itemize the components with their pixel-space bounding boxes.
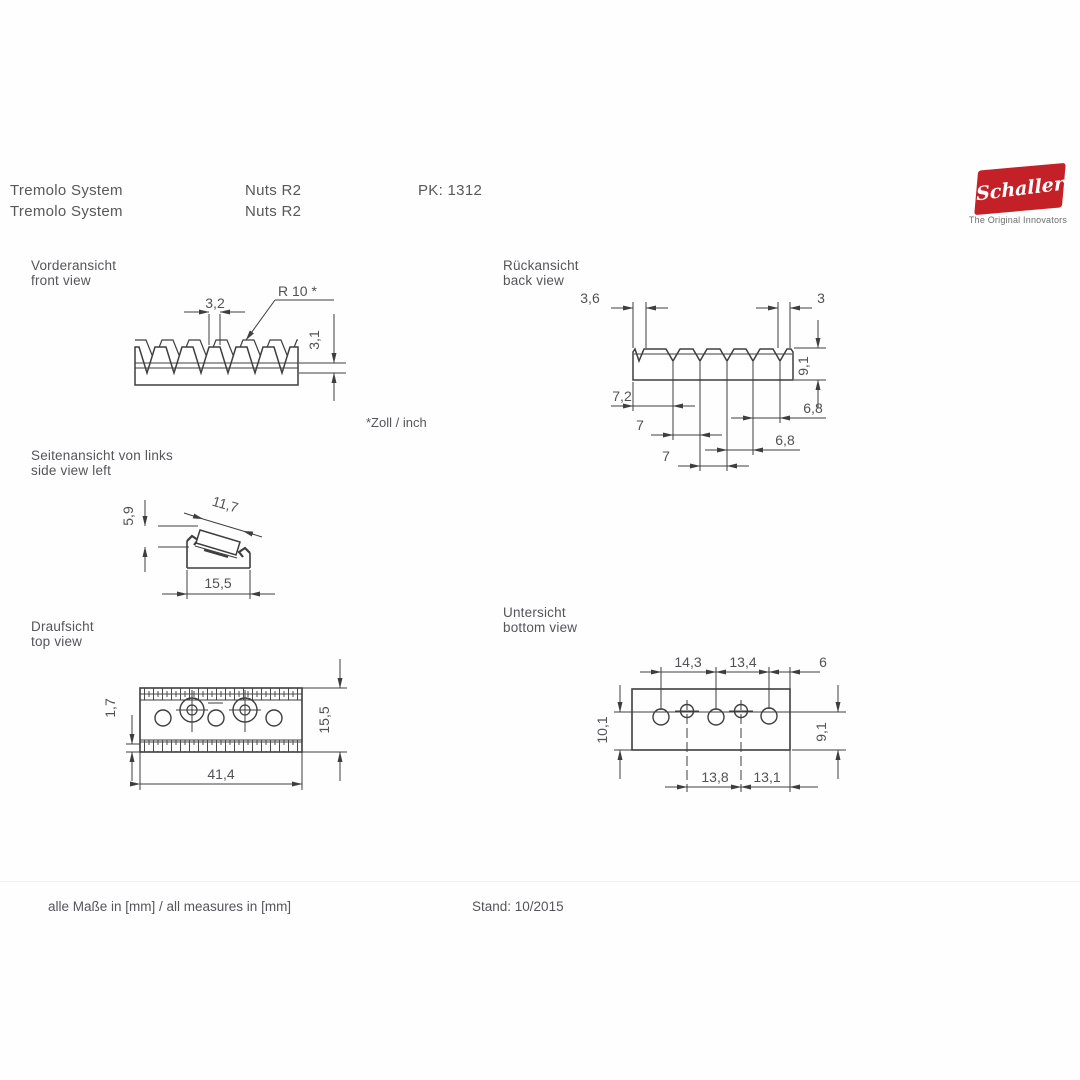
brand-tagline: The Original Innovators [963,215,1073,225]
schaller-logo: Schaller [974,163,1066,215]
dim-lines-edge [126,715,140,781]
front-view-drawing: 3,2 R 10 * 3,1 [120,282,365,412]
dim-lines-left [614,685,632,779]
dim-groove-narrow: 3 [817,290,825,306]
dim-s4: 6,8 [803,400,823,416]
dim-groove-wide: 3,6 [580,290,600,306]
bracket-right-hook [239,548,250,557]
product-title-2: Tremolo System [10,203,123,220]
inch-footnote: *Zoll / inch [366,415,427,430]
string-hole-5 [266,710,282,726]
dim-s5: 6,8 [775,432,795,448]
dim-lines-side-height [145,500,198,572]
dim-radius: R 10 * [278,283,317,299]
bottom-view-label: Untersicht bottom view [503,605,577,635]
dim-depth: 3,1 [306,330,322,350]
dim-right: 9,1 [813,722,829,742]
dim-side-width: 15,5 [204,575,231,591]
dim-left: 10,1 [594,716,610,743]
string-hole-3 [208,710,224,726]
bottom-view-drawing: 14,3 13,4 6 10,1 9,1 13,8 13,1 [580,640,880,802]
dim-lines-groove-narrow [756,302,812,348]
dim-t2: 13,4 [729,654,756,670]
nut-bottom-outline [632,689,790,750]
side-view-drawing: 5,9 11,7 15,5 [100,478,310,610]
dim-lines-top-face [184,513,262,537]
dim-s1: 7,2 [612,388,632,404]
string-hole-3 [708,709,724,725]
top-view-drawing: 1,7 15,5 41,4 [90,640,355,800]
product-title: Tremolo System [10,182,123,199]
dim-length: 41,4 [207,766,234,782]
dim-height: 9,1 [795,356,811,376]
units-note: alle Maße in [mm] / all measures in [mm] [48,899,291,914]
tilted-nut-block [196,530,240,555]
dim-s3: 7 [662,448,670,464]
footer-divider [0,881,1080,882]
dim-pitch: 3,2 [205,295,225,311]
front-view-label: Vorderansicht front view [31,258,116,288]
dim-depth: 15,5 [316,706,332,733]
serration-strip-bottom [140,740,302,752]
dim-b1: 13,8 [701,769,728,785]
dim-s2: 7 [636,417,644,433]
pk-number: PK: 1312 [418,182,482,199]
dim-t3: 6 [819,654,827,670]
brand-wordmark: Schaller [976,173,1065,206]
model-name: Nuts R2 [245,182,301,199]
dim-lines-depth [299,314,346,401]
dim-edge: 1,7 [102,698,118,718]
dim-t1: 14,3 [674,654,701,670]
dim-side-height: 5,9 [120,506,136,526]
top-view-label: Draufsicht top view [31,619,94,649]
string-hole-5 [761,708,777,724]
dim-lines-groove-wide [611,302,668,348]
dim-b2: 13,1 [753,769,780,785]
dim-top-face: 11,7 [211,493,241,516]
revision-date: Stand: 10/2015 [472,899,564,914]
string-hole-1 [653,709,669,725]
string-hole-1 [155,710,171,726]
model-name-2: Nuts R2 [245,203,301,220]
back-view-drawing: 3,6 3 9,1 7,2 6,8 7 6,8 7 [560,282,852,482]
nut-front-profile [135,347,298,385]
serration-strip-top [140,688,302,700]
side-view-label: Seitenansicht von links side view left [31,448,173,478]
